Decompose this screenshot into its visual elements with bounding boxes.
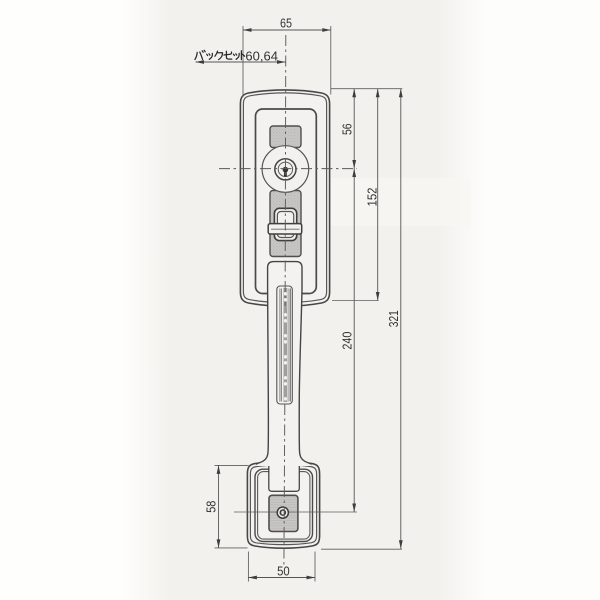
- svg-text:56: 56: [340, 123, 355, 135]
- svg-text:58: 58: [204, 501, 219, 513]
- svg-text:60,64: 60,64: [245, 49, 278, 64]
- svg-text:65: 65: [280, 16, 292, 31]
- svg-text:240: 240: [340, 332, 355, 350]
- svg-text:152: 152: [364, 188, 379, 207]
- svg-text:50: 50: [277, 564, 290, 579]
- svg-text:321: 321: [386, 310, 401, 327]
